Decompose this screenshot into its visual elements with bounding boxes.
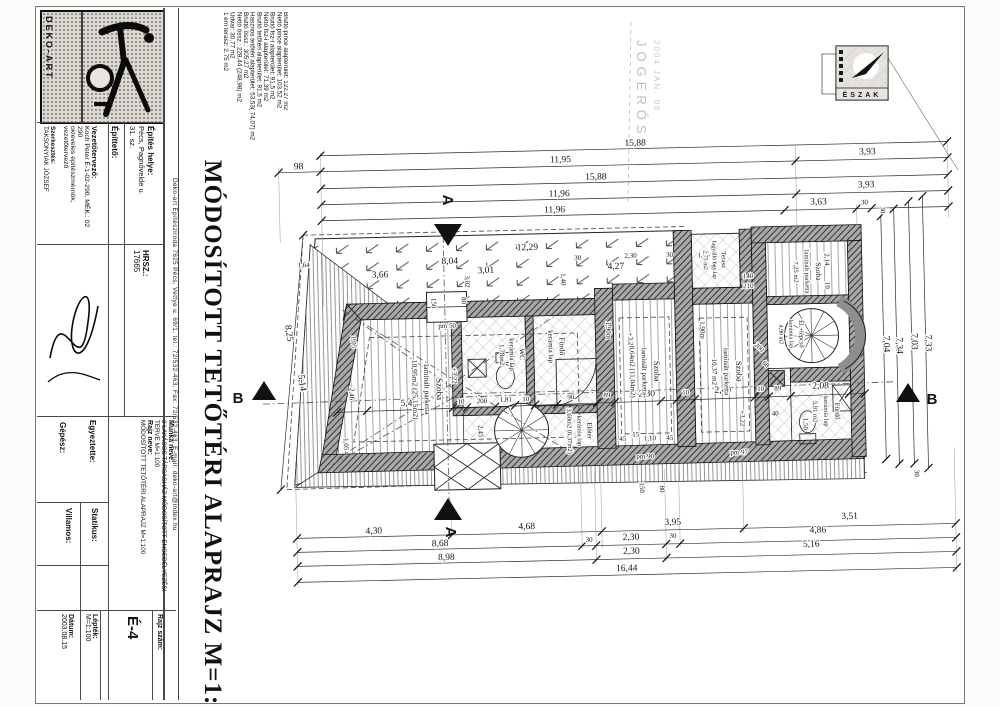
svg-text:kerámia lap: kerámia lap bbox=[822, 396, 830, 427]
svg-text:1,90m: 1,90m bbox=[604, 321, 612, 339]
svg-text:pm 97: pm 97 bbox=[730, 448, 748, 456]
svg-text:11,96: 11,96 bbox=[544, 205, 565, 215]
svg-text:8,25: 8,25 bbox=[282, 324, 294, 342]
svg-text:5,91 m2: 5,91 m2 bbox=[811, 401, 818, 422]
svg-text:3,01: 3,01 bbox=[478, 266, 495, 276]
svg-text:kerámia lap: kerámia lap bbox=[575, 416, 583, 447]
svg-text:30: 30 bbox=[574, 254, 582, 262]
svg-text:45: 45 bbox=[619, 435, 627, 443]
plan-group: 15,88 98 11,95 3,93 15,88 11,96 3,93 11,… bbox=[257, 131, 961, 588]
svg-text:3,66: 3,66 bbox=[372, 270, 389, 280]
svg-text:45: 45 bbox=[666, 434, 674, 442]
svg-text:pm 50: pm 50 bbox=[438, 322, 456, 330]
svg-text:kerámia lap: kerámia lap bbox=[546, 330, 555, 364]
svg-text:8,64m2 (11,04m2): 8,64m2 (11,04m2) bbox=[628, 346, 637, 399]
svg-text:10,95m2 (25,15m2): 10,95m2 (25,15m2) bbox=[410, 360, 420, 420]
svg-text:140: 140 bbox=[743, 272, 754, 280]
section-b-arrow-left bbox=[252, 381, 276, 400]
svg-text:11,96: 11,96 bbox=[549, 189, 570, 199]
svg-text:1,10: 1,10 bbox=[644, 434, 657, 442]
svg-text:4,27: 4,27 bbox=[607, 262, 624, 272]
floor-plan-svg: 15,88 98 11,95 3,93 15,88 11,96 3,93 11,… bbox=[0, 0, 1000, 707]
svg-text:kerámia lap: kerámia lap bbox=[507, 338, 516, 372]
svg-text:8,68: 8,68 bbox=[432, 539, 449, 549]
svg-text:10: 10 bbox=[682, 388, 690, 396]
svg-text:WC: WC bbox=[518, 348, 526, 360]
svg-text:Szoba: Szoba bbox=[814, 262, 823, 281]
svg-text:2,30: 2,30 bbox=[624, 252, 637, 260]
svg-text:Szoba: Szoba bbox=[652, 361, 662, 382]
svg-text:3,95: 3,95 bbox=[664, 518, 681, 528]
svg-text:3,51: 3,51 bbox=[841, 512, 858, 522]
svg-text:40: 40 bbox=[772, 409, 780, 417]
svg-text:1,50: 1,50 bbox=[801, 418, 809, 431]
svg-text:3,93: 3,93 bbox=[859, 147, 876, 157]
svg-text:2,30: 2,30 bbox=[623, 547, 640, 557]
svg-text:8,98: 8,98 bbox=[438, 553, 455, 563]
svg-text:2,75 m2: 2,75 m2 bbox=[702, 250, 708, 270]
svg-text:30: 30 bbox=[861, 198, 869, 206]
svg-text:2,46: 2,46 bbox=[348, 388, 356, 401]
svg-text:kerámia lap: kerámia lap bbox=[787, 320, 794, 348]
svg-text:fagyálló bgy.lap: fagyálló bgy.lap bbox=[710, 240, 718, 279]
svg-text:90: 90 bbox=[567, 393, 575, 401]
svg-text:10: 10 bbox=[757, 385, 765, 393]
svg-text:2,45: 2,45 bbox=[476, 425, 484, 438]
section-a-label-bottom: A bbox=[442, 527, 459, 538]
svg-text:5,14: 5,14 bbox=[295, 374, 307, 392]
svg-text:10,37 m2: 10,37 m2 bbox=[710, 359, 719, 386]
svg-text:80: 80 bbox=[460, 297, 468, 305]
svg-text:7,34: 7,34 bbox=[894, 337, 904, 354]
svg-text:210: 210 bbox=[743, 282, 754, 290]
scanned-floor-plan-sheet: DEKO-ART Deko-art Építésziroda 7625 Pécs… bbox=[0, 0, 1000, 707]
svg-text:5,16: 5,16 bbox=[803, 540, 820, 550]
svg-text:200: 200 bbox=[477, 397, 488, 405]
svg-text:2,08: 2,08 bbox=[812, 381, 829, 391]
svg-text:2,30: 2,30 bbox=[623, 533, 640, 543]
svg-text:15,88: 15,88 bbox=[585, 172, 607, 182]
svg-text:15,88: 15,88 bbox=[624, 138, 646, 148]
svg-text:7,04: 7,04 bbox=[881, 336, 891, 353]
svg-text:1,64: 1,64 bbox=[298, 261, 311, 269]
svg-text:1,05: 1,05 bbox=[349, 336, 357, 349]
svg-text:Fürdő: Fürdő bbox=[557, 337, 566, 355]
spiral-stair-west bbox=[494, 403, 549, 458]
svg-text:pm 90: pm 90 bbox=[636, 452, 654, 460]
svg-text:+3,22: +3,22 bbox=[450, 368, 458, 385]
svg-text:1,05: 1,05 bbox=[342, 438, 350, 451]
svg-text:3,60m2 (6,37m2): 3,60m2 (6,37m2) bbox=[565, 408, 573, 453]
svg-text:laminált parketta: laminált parketta bbox=[803, 250, 811, 294]
svg-text:4,86: 4,86 bbox=[809, 525, 826, 535]
svg-text:4,30: 4,30 bbox=[365, 526, 382, 536]
svg-text:150: 150 bbox=[638, 482, 646, 493]
svg-text:laminált parketta: laminált parketta bbox=[422, 364, 432, 415]
svg-text:10: 10 bbox=[823, 282, 831, 290]
svg-text:7,33: 7,33 bbox=[923, 335, 933, 352]
svg-text:Előtér: Előtér bbox=[585, 422, 593, 440]
svg-text:98: 98 bbox=[294, 162, 304, 172]
svg-text:11,95: 11,95 bbox=[550, 155, 571, 165]
svg-text:7,03: 7,03 bbox=[908, 333, 918, 350]
svg-text:15: 15 bbox=[632, 431, 640, 439]
svg-text:150: 150 bbox=[430, 298, 438, 309]
svg-text:4,68: 4,68 bbox=[518, 522, 535, 532]
svg-text:30: 30 bbox=[879, 206, 887, 214]
svg-text:laminált parketta: laminált parketta bbox=[640, 348, 649, 396]
svg-text:Szoba: Szoba bbox=[734, 361, 744, 382]
roof-window bbox=[434, 443, 501, 490]
svg-text:Él.+lépcső: Él.+lépcső bbox=[797, 320, 806, 348]
section-a-arrow-bottom bbox=[434, 498, 462, 520]
section-b-arrow-right bbox=[896, 383, 920, 402]
svg-text:3,02: 3,02 bbox=[463, 275, 471, 288]
svg-text:3,63: 3,63 bbox=[810, 197, 827, 207]
svg-text:10: 10 bbox=[457, 398, 465, 406]
svg-text:80: 80 bbox=[658, 485, 666, 493]
svg-text:30: 30 bbox=[669, 532, 677, 540]
svg-text:Terasz: Terasz bbox=[720, 251, 727, 268]
north-label: ÉSZAK bbox=[843, 90, 882, 99]
svg-text:1,40: 1,40 bbox=[559, 273, 567, 286]
svg-text:7,25 m2: 7,25 m2 bbox=[792, 261, 799, 282]
svg-text:16,44: 16,44 bbox=[616, 564, 638, 574]
fold-line bbox=[628, 22, 631, 205]
svg-text:Szoba: Szoba bbox=[434, 378, 444, 400]
svg-text:Fürdő: Fürdő bbox=[833, 403, 841, 420]
svg-text:30: 30 bbox=[913, 470, 921, 478]
svg-text:12,29: 12,29 bbox=[517, 243, 539, 253]
svg-text:89: 89 bbox=[774, 384, 782, 392]
section-b-label-left: B bbox=[233, 390, 244, 407]
svg-text:1,81: 1,81 bbox=[500, 395, 513, 403]
svg-text:1,78m2: 1,78m2 bbox=[498, 344, 506, 366]
svg-text:30: 30 bbox=[585, 536, 593, 544]
svg-text:89: 89 bbox=[603, 391, 611, 399]
svg-text:10: 10 bbox=[522, 395, 530, 403]
svg-text:laminált parketta: laminált parketta bbox=[722, 348, 731, 396]
svg-text:3,93: 3,93 bbox=[858, 180, 875, 190]
svg-text:30: 30 bbox=[666, 251, 674, 259]
svg-text:+3,22: +3,22 bbox=[738, 410, 746, 427]
svg-text:4,90 m2: 4,90 m2 bbox=[777, 324, 783, 344]
north-indicator: ÉSZAK bbox=[822, 46, 958, 170]
section-b-label-right: B bbox=[927, 391, 938, 408]
svg-text:1,90m: 1,90m bbox=[698, 321, 706, 339]
svg-text:2,14: 2,14 bbox=[823, 253, 831, 266]
section-a-label-top: A bbox=[439, 195, 456, 206]
svg-text:8,04: 8,04 bbox=[441, 257, 458, 267]
